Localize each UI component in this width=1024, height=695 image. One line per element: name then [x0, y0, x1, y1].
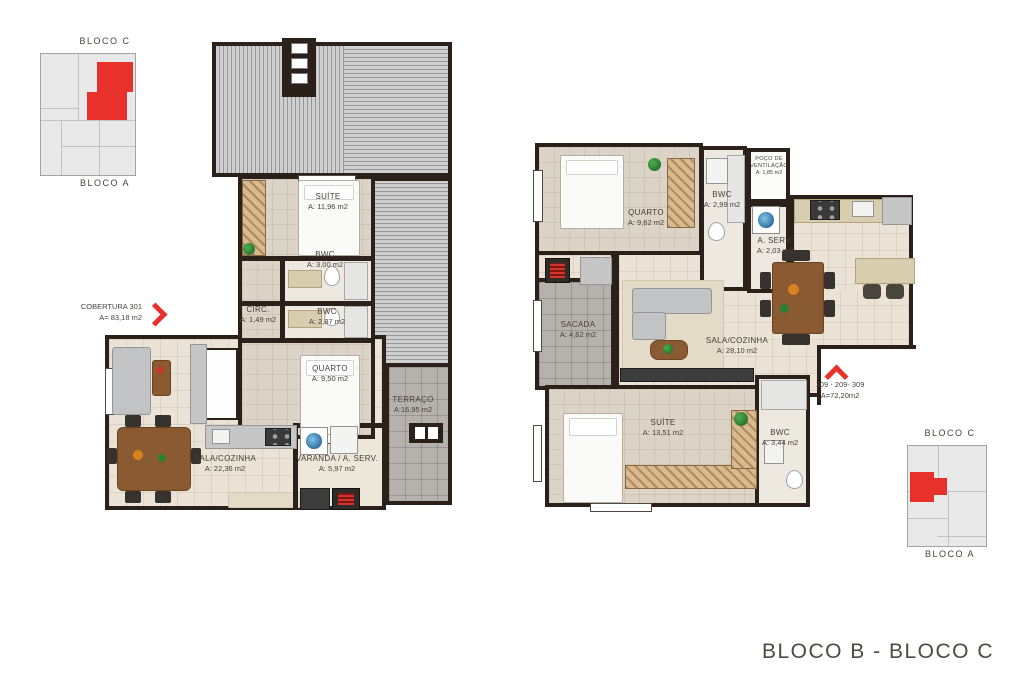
- keyplan-division-line: [948, 491, 949, 546]
- sink-icon: [212, 429, 230, 444]
- room-area: A: 9,62 m2: [628, 218, 664, 228]
- room-area: A: 28,10 m2: [706, 346, 768, 356]
- dining-table: [117, 427, 191, 491]
- keyplan-division-line: [41, 108, 78, 109]
- plant-icon: [648, 158, 661, 171]
- keyplan-division-line: [938, 536, 986, 537]
- room-label-suite: SUÍTE A: 11,96 m2: [308, 192, 348, 212]
- sink-icon: [852, 201, 874, 217]
- room-name: BWC: [307, 250, 343, 260]
- vent-glass: [415, 427, 425, 439]
- chair: [125, 491, 141, 503]
- room-name: BWC: [309, 307, 345, 317]
- room-area: A:16,95 m2: [392, 405, 433, 415]
- sheet-title: BLOCO B - BLOCO C: [762, 640, 994, 664]
- sofa: [632, 312, 666, 340]
- chimney-vent: [291, 73, 308, 84]
- keyplan-top-bloco-c-label: BLOCO C: [30, 36, 180, 46]
- toilet-icon: [786, 470, 803, 489]
- room-area: A: 2,99 m2: [704, 200, 740, 210]
- keyplan-top-bloco-a-label: BLOCO A: [30, 178, 180, 188]
- chair: [782, 334, 810, 345]
- window: [533, 425, 542, 482]
- bar-stool: [886, 284, 904, 299]
- highlighted-unit: [87, 92, 127, 120]
- decor-item: [780, 304, 789, 313]
- sofa: [112, 347, 151, 415]
- shower-icon: [727, 155, 745, 223]
- roof-area: [212, 42, 452, 177]
- room-name: TERRAÇO: [392, 395, 433, 405]
- room-label-quarto: QUARTO A: 9,62 m2: [628, 208, 664, 228]
- room-label-terraco: TERRAÇO A:16,95 m2: [392, 395, 433, 415]
- room-area: A: 3,44 m2: [762, 438, 798, 448]
- floor-plan-sheet: BLOCO C BLOCO A: [0, 0, 1024, 695]
- floor-plan-109-209-309: QUARTO A: 9,62 m2 BWC A: 2,99 m2 POÇO DE…: [530, 138, 916, 516]
- chair: [824, 272, 835, 289]
- kitchen-counter: [882, 197, 912, 225]
- barbecue-grill-icon: [545, 258, 570, 283]
- room-label-poco: POÇO DE VENTILAÇÃO A: 1,85 m2: [750, 156, 788, 177]
- keyplan-bottom-building: [907, 445, 987, 547]
- vent-glass: [428, 427, 438, 439]
- bar-stool: [863, 284, 881, 299]
- highlighted-unit: [97, 62, 133, 92]
- wall: [238, 338, 375, 343]
- stove-icon: [810, 200, 840, 220]
- unit-number: COBERTURA 301: [36, 302, 142, 313]
- chair: [107, 448, 117, 464]
- room-area: A: 1,49 m2: [240, 315, 276, 325]
- plant-icon: [663, 344, 673, 354]
- chimney: [282, 38, 316, 97]
- room-area: A: 22,36 m2: [194, 464, 256, 474]
- room-area: A: 2,03 m2: [757, 246, 793, 256]
- decor-item: [158, 454, 166, 462]
- room-name: CIRC.: [240, 305, 276, 315]
- room-label-bwc2: BWC A: 2,87 m2: [309, 307, 345, 327]
- keyplan-division-line: [78, 54, 79, 120]
- stove-icon: [265, 428, 291, 446]
- floor-plan-cobertura-301: SUÍTE A: 11,96 m2 BWC A: 3,00 m2 CIRC. A…: [100, 38, 456, 516]
- room-label-circ: CIRC. A: 1,49 m2: [240, 305, 276, 325]
- chair: [824, 300, 835, 317]
- room-label-varanda: VARANDA / A. SERV. A: 5,97 m2: [296, 454, 378, 474]
- roof-vent-icon: [409, 423, 443, 443]
- chair: [760, 272, 771, 289]
- room-label-bwc2: BWC A: 3,44 m2: [762, 428, 798, 448]
- room-label-sala: SALA/COZINHA A: 22,36 m2: [194, 454, 256, 474]
- room-area: A: 9,50 m2: [312, 374, 348, 384]
- chimney-vent: [291, 43, 308, 54]
- room-name: SALA/COZINHA: [194, 454, 256, 464]
- room-area: A: 11,96 m2: [308, 202, 348, 212]
- room-label-sala: SALA/COZINHA A: 28,10 m2: [706, 336, 768, 356]
- wardrobe: [667, 158, 695, 228]
- plant-icon: [734, 412, 748, 426]
- chair: [155, 415, 171, 427]
- kitchen-counter: [190, 344, 207, 424]
- washing-machine-icon: [300, 427, 328, 455]
- room-label-bwc1: BWC A: 3,00 m2: [307, 250, 343, 270]
- room-area: A: 4,62 m2: [560, 330, 596, 340]
- window: [533, 170, 543, 222]
- keyplan-bottom-bloco-a-label: BLOCO A: [895, 549, 1005, 559]
- room-name: QUARTO: [628, 208, 664, 218]
- room-label-aserv: A. SERV. A: 2,03 m2: [757, 236, 793, 256]
- decor-item: [133, 450, 143, 460]
- plant-icon: [243, 243, 255, 255]
- roof-area: [344, 46, 448, 173]
- room-area: A: 1,85 m2: [750, 170, 788, 177]
- wall: [280, 256, 285, 343]
- unit-label-cobertura: COBERTURA 301 A= 83,18 m2: [36, 302, 142, 323]
- room-label-sacada: SACADA A: 4,62 m2: [560, 320, 596, 340]
- chair: [155, 491, 171, 503]
- highlighted-unit: [934, 478, 947, 495]
- shower-icon: [761, 380, 807, 410]
- rug: [228, 492, 302, 508]
- shower-icon: [344, 306, 368, 338]
- utility-box: [300, 488, 330, 510]
- bar-counter: [855, 258, 915, 284]
- sink-icon: [288, 270, 322, 288]
- unit-area: A=72,20m2: [816, 391, 865, 402]
- sofa: [632, 288, 712, 314]
- room-name: SUÍTE: [308, 192, 348, 202]
- highlighted-unit: [910, 472, 934, 502]
- oven-cabinet: [580, 257, 612, 285]
- room-label-bwc1: BWC A: 2,99 m2: [704, 190, 740, 210]
- room-name: A. SERV.: [757, 236, 793, 246]
- window: [533, 300, 542, 352]
- dining-table: [772, 262, 824, 334]
- keyplan-bottom: BLOCO C BLOCO A: [895, 428, 1005, 566]
- decor-item: [788, 284, 799, 295]
- keyplan-bottom-bloco-c-label: BLOCO C: [895, 428, 1005, 438]
- washing-machine-icon: [752, 206, 780, 234]
- bed: [563, 413, 623, 503]
- keyplan-division-line: [61, 120, 62, 175]
- room-name: BWC: [762, 428, 798, 438]
- keyplan-division-line: [908, 518, 948, 519]
- room-label-quarto: QUARTO A: 9,50 m2: [312, 364, 348, 384]
- room-area: A: 3,00 m2: [307, 260, 343, 270]
- chair: [125, 415, 141, 427]
- barbecue-grill-icon: [332, 488, 360, 510]
- toilet-icon: [708, 222, 725, 241]
- room-name: BWC: [704, 190, 740, 200]
- room-name: QUARTO: [312, 364, 348, 374]
- kitchen-counter: [620, 368, 754, 382]
- room-area: A: 2,87 m2: [309, 317, 345, 327]
- decor-item: [156, 366, 164, 374]
- stair-void: [205, 348, 238, 420]
- room-area: A: 5,97 m2: [296, 464, 378, 474]
- room-name: SACADA: [560, 320, 596, 330]
- laundry-sink-icon: [330, 426, 358, 454]
- chair: [760, 300, 771, 317]
- chimney-vent: [291, 58, 308, 69]
- bed: [560, 155, 624, 229]
- sink-icon: [706, 158, 728, 184]
- room-label-suite: SUÍTE A: 13,51 m2: [643, 418, 683, 438]
- shower-icon: [344, 262, 368, 300]
- room-name: SALA/COZINHA: [706, 336, 768, 346]
- window: [590, 503, 652, 512]
- room-name: VARANDA / A. SERV.: [296, 454, 378, 464]
- room-name: SUÍTE: [643, 418, 683, 428]
- room-area: A: 13,51 m2: [643, 428, 683, 438]
- room-name: POÇO DE VENTILAÇÃO: [750, 156, 788, 170]
- unit-area: A= 83,18 m2: [36, 313, 142, 324]
